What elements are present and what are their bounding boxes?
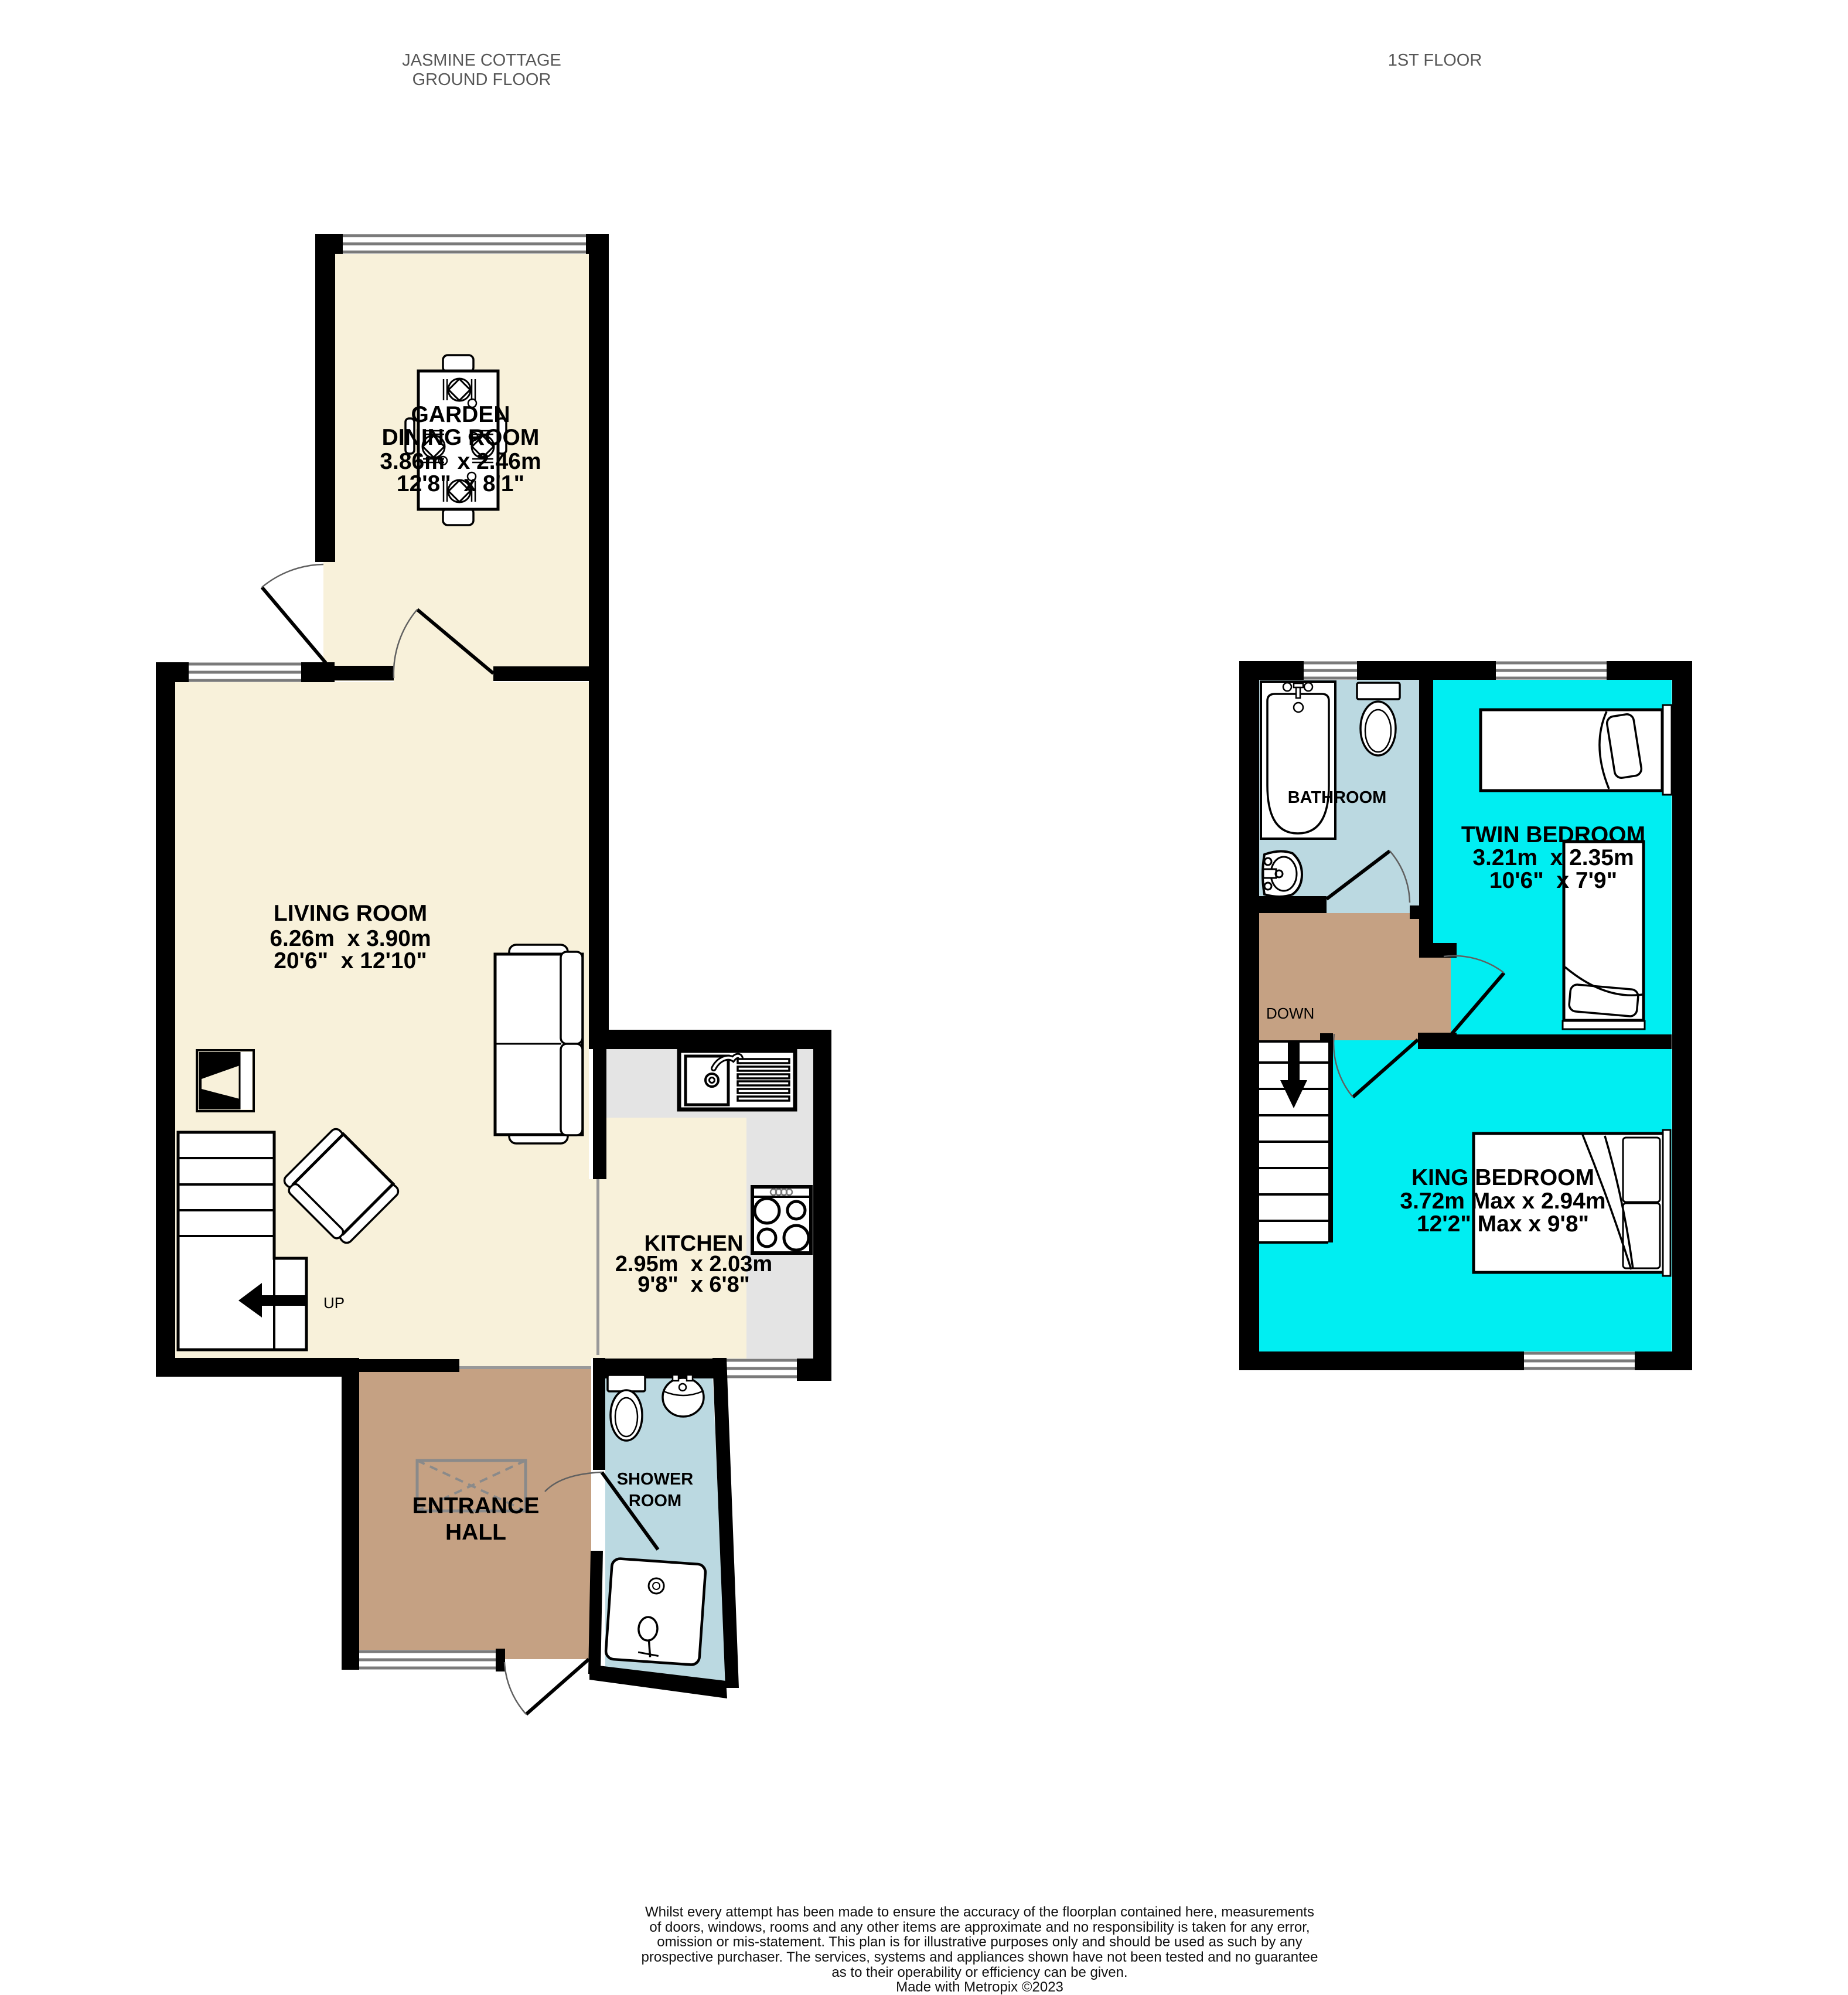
svg-text:ENTRANCE: ENTRANCE bbox=[412, 1493, 540, 1519]
svg-text:9'8" x 6'8": 9'8" x 6'8" bbox=[637, 1272, 749, 1297]
svg-text:20'6" x 12'10": 20'6" x 12'10" bbox=[274, 948, 427, 973]
svg-text:6.26m x 3.90m: 6.26m x 3.90m bbox=[270, 926, 431, 951]
svg-text:ROOM: ROOM bbox=[629, 1492, 681, 1510]
svg-text:SHOWER: SHOWER bbox=[617, 1470, 694, 1489]
svg-text:BATHROOM: BATHROOM bbox=[1288, 788, 1387, 807]
svg-text:TWIN BEDROOM: TWIN BEDROOM bbox=[1461, 822, 1645, 847]
svg-text:12'2" Max x 9'8": 12'2" Max x 9'8" bbox=[1417, 1211, 1589, 1237]
svg-text:DOWN: DOWN bbox=[1266, 1005, 1314, 1022]
svg-text:DINING ROOM: DINING ROOM bbox=[382, 425, 540, 450]
svg-text:3.21m x 2.35m: 3.21m x 2.35m bbox=[1472, 845, 1634, 870]
svg-text:as to their operability or eff: as to their operability or efficiency ca… bbox=[831, 1965, 1127, 1980]
svg-text:KING BEDROOM: KING BEDROOM bbox=[1411, 1165, 1594, 1190]
svg-text:JASMINE COTTAGE: JASMINE COTTAGE bbox=[402, 51, 561, 70]
svg-text:GROUND FLOOR: GROUND FLOOR bbox=[412, 70, 551, 89]
svg-text:UP: UP bbox=[323, 1294, 345, 1312]
svg-text:HALL: HALL bbox=[445, 1520, 506, 1545]
svg-text:12'8" x 8'1": 12'8" x 8'1" bbox=[397, 471, 524, 496]
svg-text:Made with Metropix ©2023: Made with Metropix ©2023 bbox=[896, 1979, 1063, 1995]
svg-text:3.86m x 2.46m: 3.86m x 2.46m bbox=[380, 449, 541, 474]
svg-text:of doors, windows, rooms and a: of doors, windows, rooms and any other i… bbox=[649, 1919, 1310, 1935]
svg-text:1ST FLOOR: 1ST FLOOR bbox=[1388, 51, 1482, 70]
svg-text:prospective purchaser. The ser: prospective purchaser. The services, sys… bbox=[642, 1949, 1318, 1965]
svg-text:omission or mis-statement. Thi: omission or mis-statement. This plan is … bbox=[657, 1934, 1302, 1950]
svg-text:Whilst every attempt has been: Whilst every attempt has been made to en… bbox=[645, 1904, 1314, 1920]
svg-text:10'6" x 7'9": 10'6" x 7'9" bbox=[1489, 868, 1617, 893]
svg-text:3.72m Max x 2.94m: 3.72m Max x 2.94m bbox=[1400, 1189, 1605, 1214]
svg-text:LIVING ROOM: LIVING ROOM bbox=[274, 901, 427, 926]
svg-text:GARDEN: GARDEN bbox=[411, 402, 510, 427]
